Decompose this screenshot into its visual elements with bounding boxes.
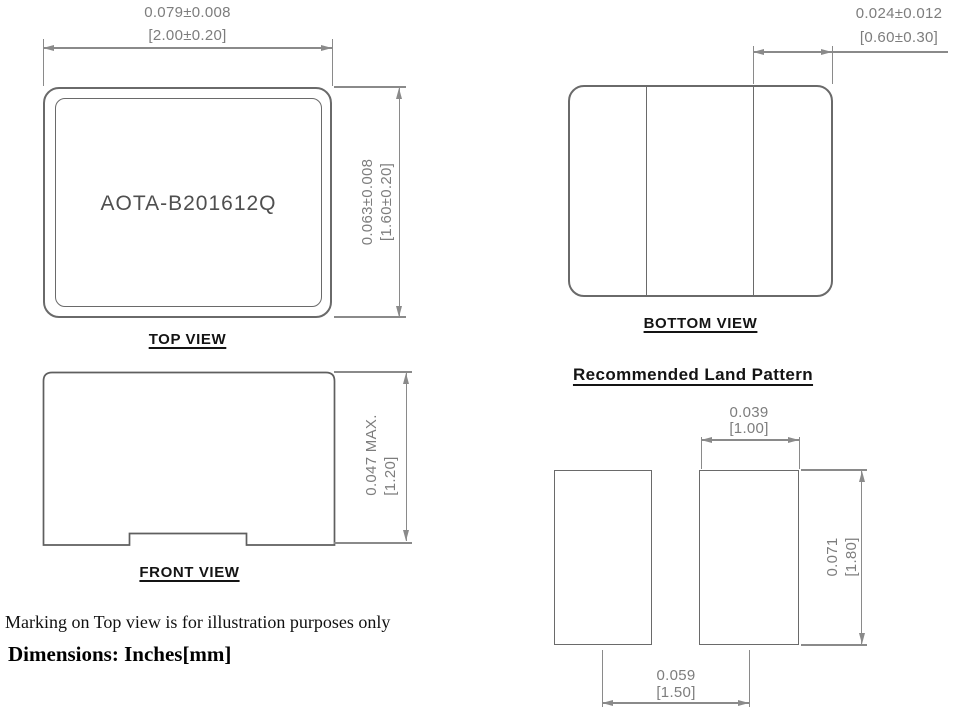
dimensions-note: Dimensions: Inches[mm]: [8, 642, 231, 667]
pad-height-dim-text: 0.071 [1.80]: [823, 537, 861, 576]
top-view-height-dim-text: 0.063±0.008 [1.60±0.20]: [358, 159, 396, 246]
arrowhead-right-icon: [738, 700, 749, 706]
arrowhead-right-icon: [788, 437, 799, 443]
part-marking-text: AOTA-B201612Q: [55, 192, 322, 216]
arrowhead-right-icon: [321, 45, 332, 51]
front-view-height-dim-line: [406, 373, 407, 541]
arrowhead-left-icon: [753, 49, 764, 55]
pad-width-dim-inches: 0.039: [699, 404, 799, 421]
arrowhead-left-icon: [701, 437, 712, 443]
pad-spacing-dim-inches: 0.059: [626, 667, 726, 684]
bottom-view-label: BOTTOM VIEW: [568, 315, 833, 332]
front-view-height-dim-mm: [1.20]: [381, 414, 400, 495]
marking-note: Marking on Top view is for illustration …: [5, 612, 390, 633]
pad-width-dim-line: [701, 439, 799, 440]
pad-height-dim-mm: [1.80]: [842, 537, 861, 576]
front-view-height-dim-inches: 0.047 MAX.: [362, 414, 381, 495]
pad-height-dim-inches: 0.071: [823, 537, 842, 576]
bottom-view-terminal-dim-mm: [0.60±0.30]: [849, 29, 949, 46]
bottom-view-terminal-dim-line: [753, 51, 948, 52]
bottom-view-terminal-divider-left: [646, 87, 647, 295]
pad-spacing-dim-mm: [1.50]: [626, 684, 726, 701]
package-drawing-page: 0.079±0.008 [2.00±0.20] AOTA-B201612Q 0.…: [0, 0, 955, 714]
top-view-height-dim-line: [399, 88, 400, 317]
pad-spacing-ext-line-right: [749, 650, 750, 707]
arrowhead-down-icon: [403, 530, 409, 541]
pad-spacing-ext-line-left: [602, 650, 603, 707]
pad-height-ext-line-top: [801, 469, 867, 470]
arrowhead-up-icon: [859, 471, 865, 482]
pad-height-dim-line: [861, 471, 862, 644]
top-view-height-dim-mm: [1.60±0.20]: [377, 159, 396, 246]
front-view-label: FRONT VIEW: [45, 564, 334, 581]
top-view-width-dim-mm: [2.00±0.20]: [43, 27, 332, 44]
front-view-outline: [42, 370, 336, 547]
arrowhead-up-icon: [396, 88, 402, 99]
top-view-width-dim-inches: 0.079±0.008: [43, 4, 332, 21]
front-view-height-ext-line-bottom: [334, 542, 412, 543]
bottom-view-outline: [568, 85, 833, 297]
land-pattern-pad-right: [699, 470, 799, 645]
bottom-view-terminal-dim-inches: 0.024±0.012: [849, 5, 949, 22]
pad-width-dim-mm: [1.00]: [699, 420, 799, 437]
top-view-height-dim-inches: 0.063±0.008: [358, 159, 377, 246]
arrowhead-right-icon: [821, 49, 832, 55]
land-pattern-title: Recommended Land Pattern: [540, 365, 846, 385]
pad-spacing-dim-line: [602, 702, 749, 703]
front-view-height-ext-line-top: [334, 371, 412, 372]
land-pattern-pad-left: [554, 470, 652, 645]
arrowhead-left-icon: [602, 700, 613, 706]
arrowhead-down-icon: [396, 306, 402, 317]
arrowhead-up-icon: [403, 373, 409, 384]
front-view-height-dim-text: 0.047 MAX. [1.20]: [362, 414, 400, 495]
top-view-width-dim-line: [43, 47, 332, 48]
arrowhead-left-icon: [43, 45, 54, 51]
top-view-label: TOP VIEW: [43, 331, 332, 348]
arrowhead-down-icon: [859, 633, 865, 644]
pad-height-ext-line-bottom: [801, 644, 867, 645]
bottom-view-terminal-divider-right: [753, 87, 754, 295]
